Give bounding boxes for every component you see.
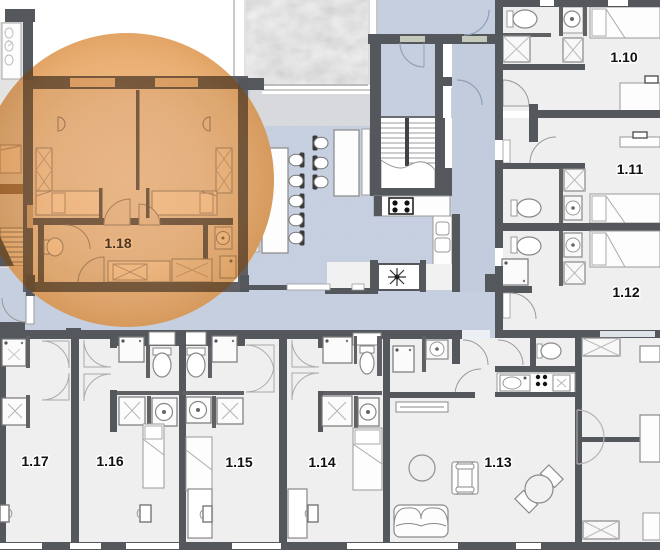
svg-text:1.13: 1.13 <box>484 454 511 470</box>
svg-text:1.16: 1.16 <box>96 453 123 469</box>
svg-text:1.11: 1.11 <box>617 161 644 177</box>
svg-text:1.12: 1.12 <box>612 284 639 300</box>
svg-text:1.15: 1.15 <box>225 454 252 470</box>
svg-text:1.14: 1.14 <box>308 454 335 470</box>
svg-text:1.17: 1.17 <box>21 453 48 469</box>
svg-text:1.10: 1.10 <box>610 49 637 65</box>
